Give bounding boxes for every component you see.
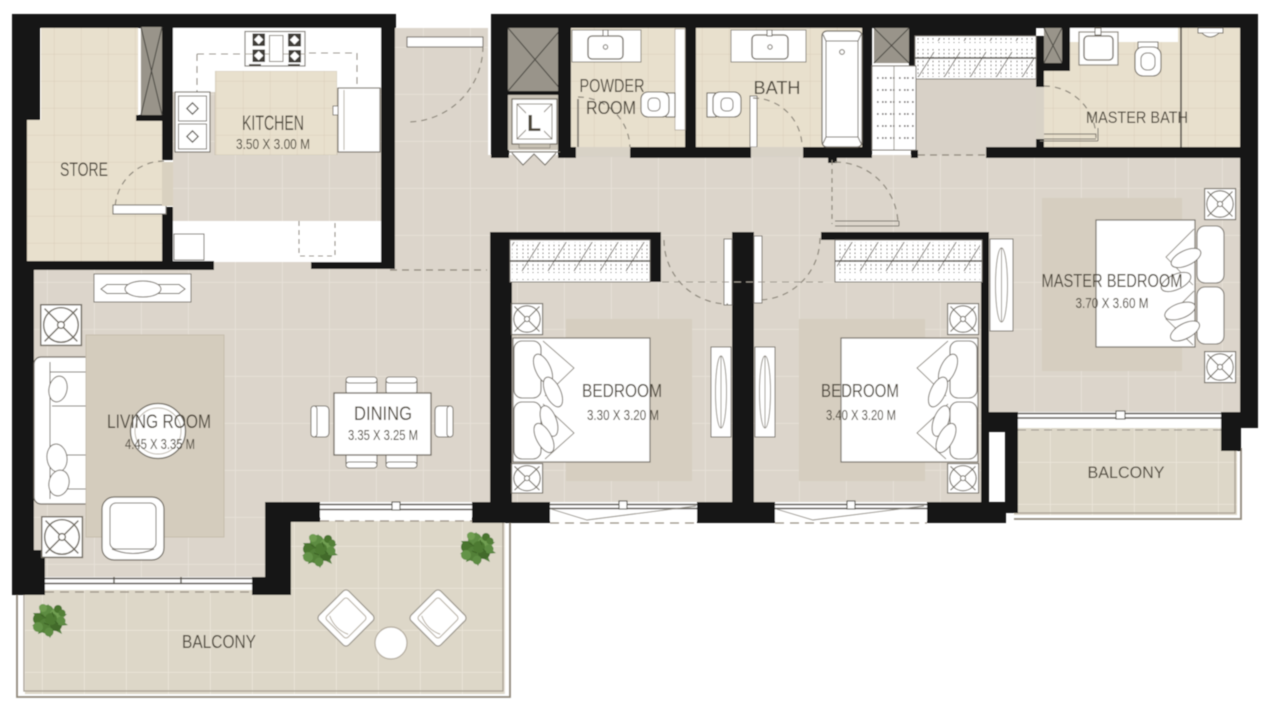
- svg-text:MASTER BATH: MASTER BATH: [1086, 108, 1188, 127]
- svg-text:BALCONY: BALCONY: [1088, 464, 1165, 482]
- svg-text:BEDROOM: BEDROOM: [582, 380, 662, 401]
- svg-text:BALCONY: BALCONY: [182, 632, 256, 652]
- svg-text:ROOM: ROOM: [586, 97, 636, 118]
- svg-text:3.35 X 3.25 M: 3.35 X 3.25 M: [348, 427, 418, 444]
- svg-text:POWDER: POWDER: [580, 75, 645, 96]
- svg-text:3.70 X 3.60 M: 3.70 X 3.60 M: [1076, 296, 1149, 312]
- svg-text:3.50 X 3.00 M: 3.50 X 3.00 M: [236, 136, 310, 153]
- svg-text:LIVING ROOM: LIVING ROOM: [107, 412, 211, 433]
- svg-text:DINING: DINING: [354, 403, 412, 425]
- svg-text:3.30 X 3.20 M: 3.30 X 3.20 M: [587, 408, 659, 424]
- svg-text:4.45 X 3.35 M: 4.45 X 3.35 M: [125, 436, 195, 453]
- svg-text:KITCHEN: KITCHEN: [242, 111, 304, 135]
- svg-text:L: L: [527, 110, 541, 136]
- svg-text:STORE: STORE: [60, 160, 108, 181]
- svg-text:BATH: BATH: [754, 77, 801, 98]
- svg-text:BEDROOM: BEDROOM: [821, 380, 899, 401]
- svg-text:3.40 X 3.20 M: 3.40 X 3.20 M: [826, 408, 896, 424]
- svg-text:MASTER BEDROOM: MASTER BEDROOM: [1042, 271, 1183, 291]
